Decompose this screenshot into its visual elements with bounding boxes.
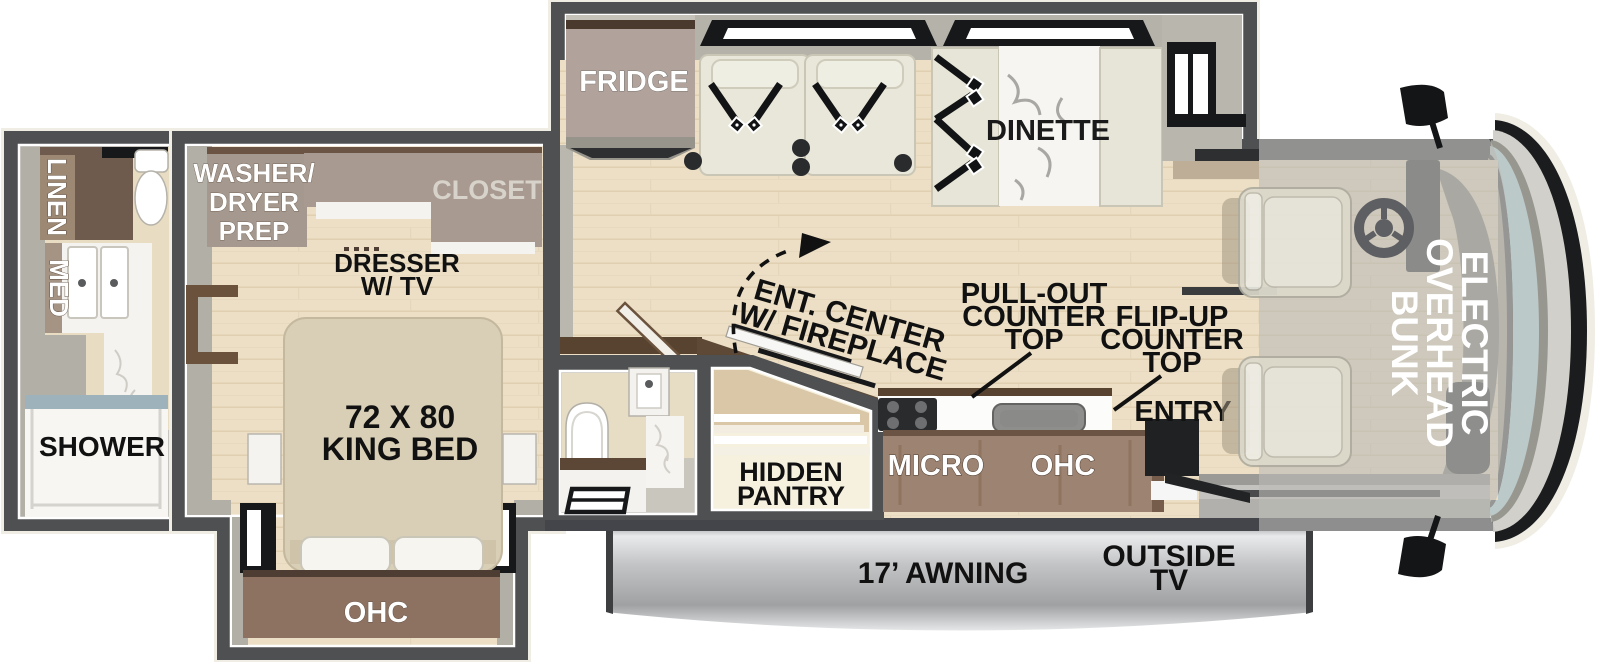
svg-text:TV: TV	[1150, 564, 1188, 597]
svg-text:TOP: TOP	[1004, 324, 1063, 356]
svg-text:DRYER: DRYER	[209, 187, 299, 217]
svg-text:TOP: TOP	[1142, 347, 1201, 379]
svg-text:MICRO: MICRO	[888, 450, 985, 482]
svg-text:SHOWER: SHOWER	[39, 431, 165, 462]
svg-text:WASHER/: WASHER/	[193, 158, 314, 188]
svg-text:PREP: PREP	[219, 216, 290, 246]
svg-text:FRIDGE: FRIDGE	[579, 66, 689, 98]
svg-text:LINEN: LINEN	[42, 158, 72, 236]
svg-text:ENTRY: ENTRY	[1134, 396, 1231, 428]
svg-text:OHC: OHC	[1031, 450, 1096, 482]
svg-text:CLOSET: CLOSET	[432, 175, 542, 205]
svg-text:PANTRY: PANTRY	[737, 481, 845, 511]
svg-text:17’ AWNING: 17’ AWNING	[858, 557, 1029, 590]
svg-text:MED: MED	[44, 259, 74, 317]
svg-text:W/ TV: W/ TV	[361, 271, 434, 301]
svg-text:KING BED: KING BED	[322, 431, 478, 467]
svg-text:BUNK: BUNK	[1384, 290, 1425, 397]
svg-text:OHC: OHC	[344, 597, 409, 629]
svg-text:DINETTE: DINETTE	[986, 115, 1110, 147]
svg-text:72 X 80: 72 X 80	[345, 399, 455, 435]
